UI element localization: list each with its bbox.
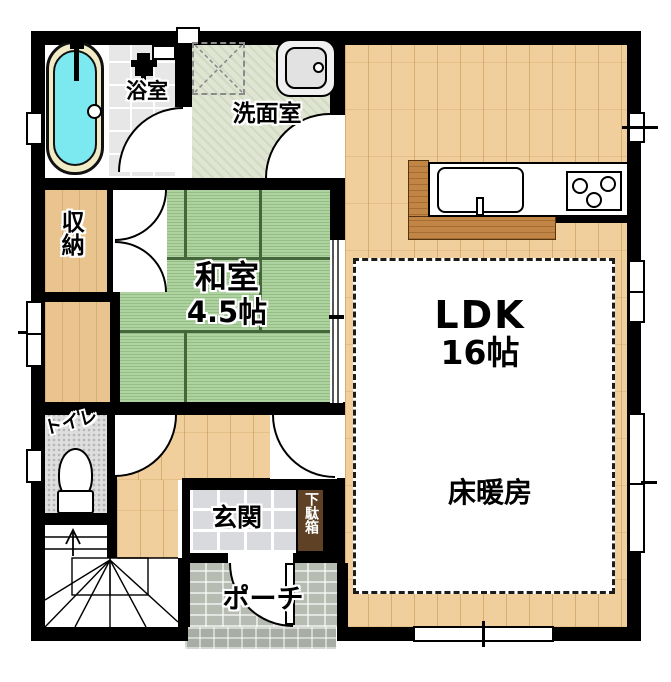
wall — [553, 217, 627, 223]
porch-step — [185, 627, 336, 649]
washer-pan — [192, 42, 245, 95]
up-arrow-icon — [66, 530, 80, 556]
wall — [178, 558, 190, 627]
storage-label: 収納 — [58, 210, 82, 280]
bath-counter — [152, 45, 176, 60]
window-handle — [18, 331, 28, 334]
bath-faucet-stem — [74, 49, 79, 81]
wall — [31, 513, 117, 525]
shower-faucet-icon — [137, 53, 150, 60]
floor-heating-label: 床暖房 — [420, 478, 560, 507]
wall — [325, 478, 345, 563]
ldk-size-label: 16帖 — [400, 336, 560, 371]
fusuma-track — [332, 240, 334, 403]
window-hall-left — [26, 301, 43, 367]
wall — [190, 553, 228, 563]
burner — [586, 192, 602, 208]
wall — [293, 553, 325, 563]
ldk-label: LDK — [400, 296, 560, 336]
tatami-line — [184, 190, 187, 258]
fusuma-sliding-door — [330, 240, 343, 403]
bath-drain-knob — [87, 104, 102, 119]
washitsu-size-label: 4.5帖 — [172, 297, 282, 327]
window-handle — [622, 126, 658, 129]
fusuma-handle — [329, 315, 344, 319]
wall — [31, 31, 641, 45]
bathroom-label: 浴室 — [118, 80, 176, 102]
wall — [182, 478, 190, 563]
kitchen-faucet — [476, 197, 484, 216]
toilet-tank — [57, 490, 94, 514]
tatami-line — [184, 333, 187, 403]
entrance-label: 玄関 — [205, 505, 269, 531]
hall-column-floor — [117, 480, 178, 558]
shower-faucet-icon — [131, 60, 157, 67]
shoe-cabinet-label: 下駄箱 — [301, 492, 321, 552]
bath-faucet-icon — [63, 35, 91, 43]
washitsu-label: 和室 — [172, 261, 282, 295]
window-right-2 — [628, 260, 645, 323]
burner — [572, 178, 588, 194]
wall — [110, 292, 120, 415]
washbasin-drain — [313, 62, 324, 73]
wall — [330, 182, 345, 240]
shower-faucet-icon — [135, 67, 153, 76]
wall — [337, 563, 348, 627]
wall — [31, 627, 188, 641]
wall — [31, 178, 345, 190]
fusuma-track — [337, 240, 339, 403]
window-toilet — [26, 449, 43, 483]
washroom-label: 洗面室 — [212, 102, 322, 126]
corridor-floor — [45, 302, 110, 402]
wall — [175, 45, 192, 107]
wall — [31, 292, 117, 302]
burner — [600, 176, 616, 192]
porch-label: ポーチ — [208, 586, 318, 614]
tatami-line — [115, 330, 330, 333]
window-bath-left — [26, 112, 43, 145]
window-handle — [641, 481, 657, 484]
window-divider — [482, 621, 485, 647]
kitchen-counter-front — [408, 216, 556, 240]
floor-plan: LDK 16帖 床暖房 和室 4.5帖 洗面室 浴室 収納 トイレ 玄関 ポーチ… — [0, 0, 671, 682]
